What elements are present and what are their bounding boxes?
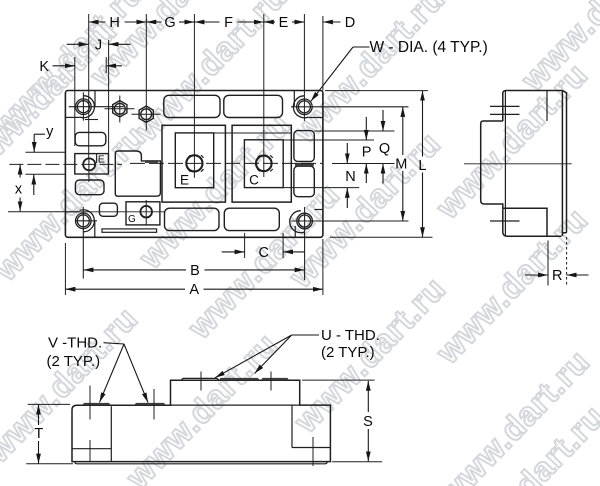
svg-text:F: F — [224, 15, 233, 31]
svg-text:(2 TYP.): (2 TYP.) — [321, 344, 375, 361]
svg-text:R: R — [552, 268, 562, 284]
svg-text:E: E — [98, 154, 105, 165]
svg-text:G: G — [128, 214, 136, 225]
svg-text:H: H — [109, 15, 119, 31]
svg-text:y: y — [46, 124, 54, 140]
svg-text:E: E — [180, 173, 189, 188]
svg-text:S: S — [363, 414, 373, 430]
svg-text:J: J — [95, 37, 102, 53]
svg-text:C: C — [259, 245, 269, 261]
svg-text:A: A — [189, 282, 199, 298]
svg-text:D: D — [345, 15, 355, 31]
svg-text:B: B — [190, 263, 200, 279]
svg-text:K: K — [39, 59, 49, 75]
svg-text:G: G — [164, 15, 175, 31]
svg-text:N: N — [345, 169, 355, 185]
svg-text:P: P — [362, 144, 372, 160]
svg-text:U - THD.: U - THD. — [321, 327, 380, 344]
svg-text:M: M — [395, 156, 407, 172]
svg-text:(2 TYP.): (2 TYP.) — [47, 353, 101, 370]
svg-text:V -THD.: V -THD. — [48, 335, 102, 352]
svg-text:x: x — [15, 181, 23, 197]
svg-text:W - DIA. (4 TYP.): W - DIA. (4 TYP.) — [370, 39, 488, 56]
svg-text:L: L — [418, 158, 426, 174]
svg-text:Q: Q — [379, 141, 390, 157]
svg-text:E: E — [279, 15, 289, 31]
svg-text:T: T — [34, 426, 43, 442]
svg-text:C: C — [249, 173, 259, 188]
